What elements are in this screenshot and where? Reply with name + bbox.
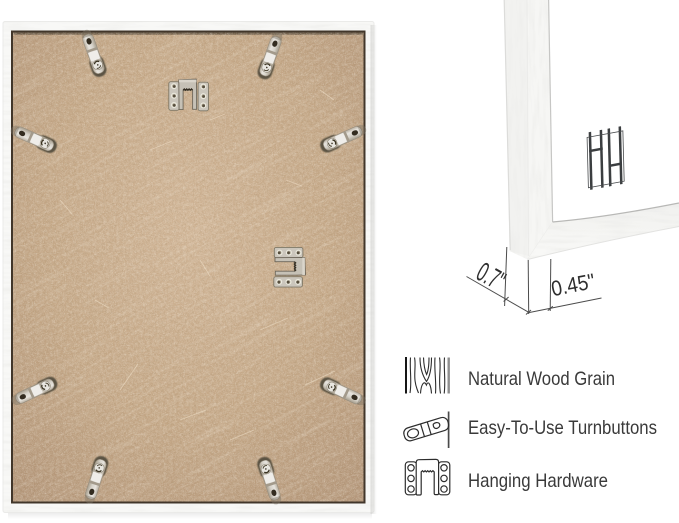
svg-text:Natural Wood Grain: Natural Wood Grain <box>468 368 615 390</box>
svg-text:Hanging Hardware: Hanging Hardware <box>468 470 608 492</box>
svg-text:Easy-To-Use Turnbuttons: Easy-To-Use Turnbuttons <box>468 417 657 439</box>
